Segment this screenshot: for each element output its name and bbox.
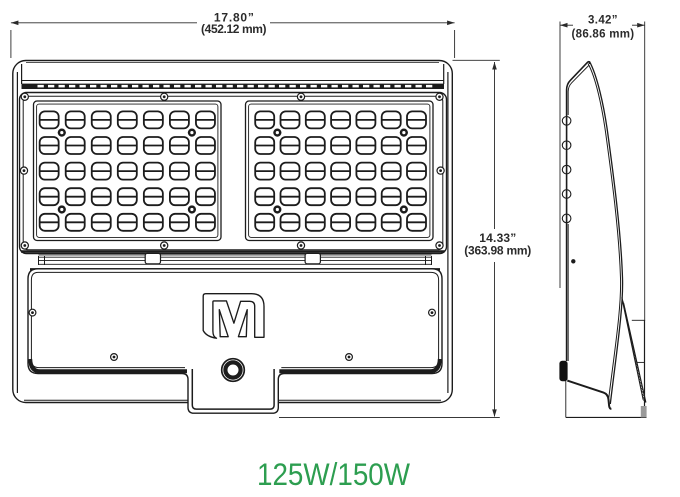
svg-text:3.42”: 3.42” — [588, 15, 618, 27]
svg-text:(363.98 mm): (363.98 mm) — [464, 243, 531, 257]
svg-text:125W/150W: 125W/150W — [257, 456, 410, 492]
svg-text:(452.12 mm): (452.12 mm) — [201, 22, 266, 36]
svg-text:(86.86 mm): (86.86 mm) — [572, 29, 635, 41]
